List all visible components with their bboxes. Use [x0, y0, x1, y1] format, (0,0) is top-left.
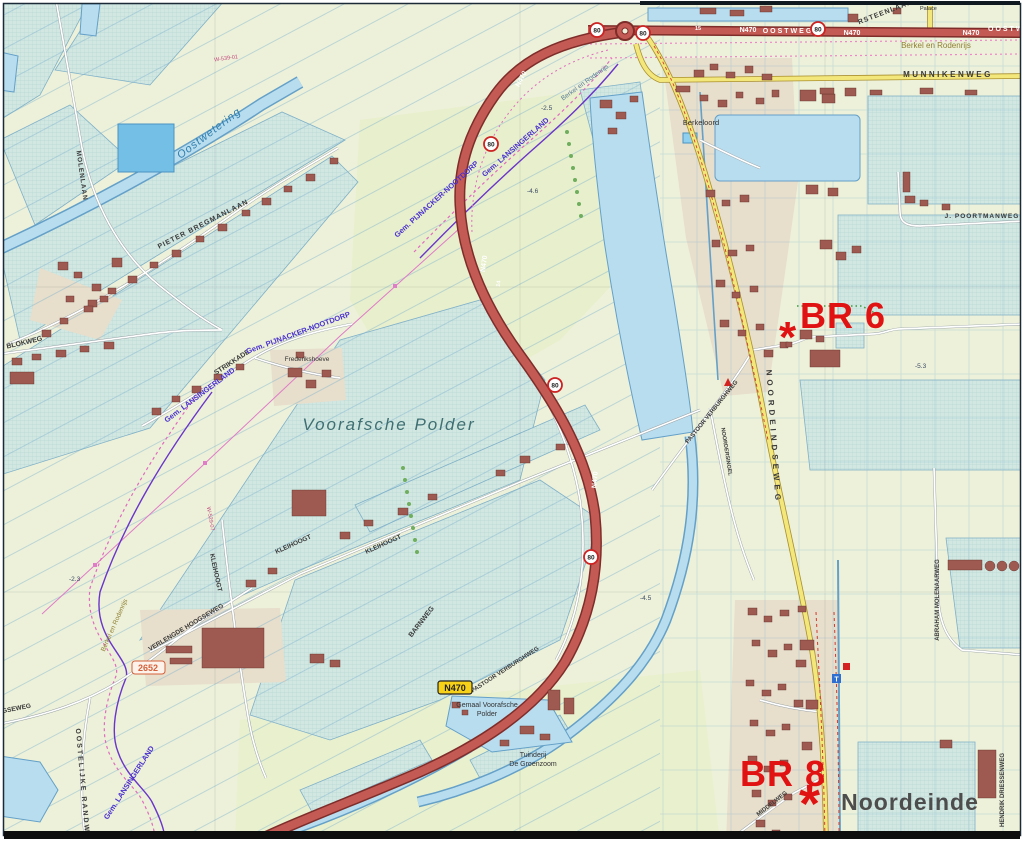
label-depth-46: -4.6 [527, 188, 539, 195]
label-depth-53: -5.3 [915, 363, 927, 370]
topographic-map-viewport[interactable]: T OOSTWEG OOSTWEG N470 N470 N470 N470 N4… [0, 0, 1024, 843]
label-tuinderij-2: De Groenzoom [509, 761, 557, 768]
label-tuinderij-1: Tuinderij [520, 752, 547, 759]
shield-80: 80 [814, 26, 822, 33]
label-noordeinde: Noordeinde [841, 789, 979, 815]
label-berkel-en-rodenrijs: Berkel en Rodenrijs [901, 41, 971, 50]
red-square-icon [843, 663, 850, 670]
label-n470-1: N470 [740, 27, 757, 34]
annotation-br8-marker-icon: * [799, 774, 820, 834]
label-abraham-molenaarweg: ABRAHAM MOLENAARWEG [935, 559, 941, 641]
label-oostweg-2: OOSTWEG [988, 26, 1024, 33]
annotation-br6: BR 6 [800, 295, 886, 336]
n470-route-shield: N470 [438, 681, 472, 694]
label-frederikshoeve: Frederikshoeve [285, 356, 330, 363]
label-j-poortmanweg: J. POORTMANWEG [945, 213, 1020, 220]
label-depth-45: -4.5 [640, 595, 652, 602]
label-n470-2: N470 [844, 30, 861, 37]
shield-80: 80 [639, 30, 647, 37]
label-voorafsche-polder: Voorafsche Polder [302, 415, 475, 434]
label-oostweg: OOSTWEG [763, 28, 814, 35]
label-n470-6: N470 [591, 471, 599, 488]
label-depth-23: -2.3 [69, 576, 81, 583]
label-n470-3: N470 [963, 30, 980, 37]
label-gemaal-1: Gemaal Voorafsche [456, 702, 518, 709]
shield-80: 80 [593, 27, 601, 34]
label-km15: 15 [695, 26, 701, 32]
label-gemaal-2: Polder [477, 711, 498, 718]
label-palace: Palace [920, 6, 937, 12]
label-hendrik-driessenweg: HENDRIK DRIESSENWEG [1000, 753, 1006, 827]
map-canvas: T OOSTWEG OOSTWEG N470 N470 N470 N470 N4… [0, 0, 1024, 843]
shield-80: 80 [551, 382, 559, 389]
annotation-br6-marker-icon: * [779, 313, 797, 362]
label-berkeloord: Berkeloord [683, 118, 719, 127]
shield-n470: N470 [444, 683, 466, 693]
label-depth-25: -2.5 [541, 105, 553, 112]
label-area-2652: 2652 [138, 663, 158, 673]
shield-80: 80 [487, 141, 495, 148]
label-munnikenweg: MUNNIKENWEG [903, 70, 993, 79]
shield-80: 80 [587, 554, 595, 561]
svg-text:T: T [834, 677, 839, 684]
